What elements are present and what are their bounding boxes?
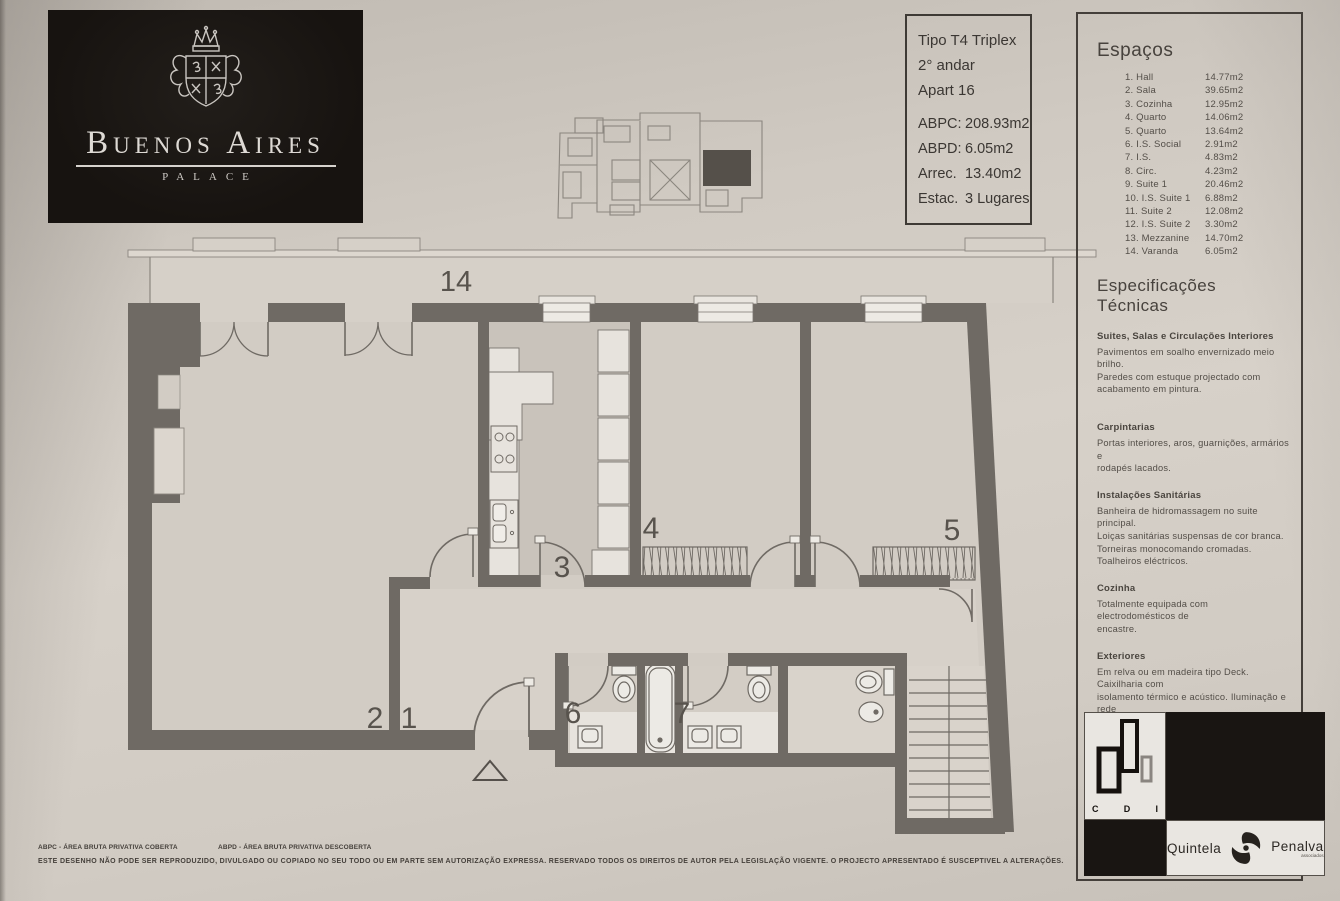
unit-metric-row: ABPD: 6.05m2 — [918, 137, 1030, 162]
unit-apartment: Apart 16 — [918, 78, 1030, 103]
sink-icon — [578, 726, 602, 748]
space-name: 3. Cozinha — [1125, 98, 1205, 111]
metric-value: 6.05m2 — [965, 137, 1013, 162]
space-row: 4. Quarto 14.06m2 — [1125, 111, 1289, 124]
key-plan — [558, 113, 762, 218]
room-label-cozinha: 3 — [554, 551, 571, 584]
spaces-title: Espaços — [1097, 40, 1289, 62]
spec-heading: Carpintarias — [1097, 422, 1289, 433]
associados-text: associados — [1301, 853, 1324, 858]
space-area: 12.95m2 — [1205, 98, 1243, 111]
space-row: 13. Mezzanine 14.70m2 — [1125, 232, 1289, 245]
quintela-penalva-logo: Quintela Penalva associados — [1166, 820, 1325, 876]
sink-icon — [688, 726, 712, 748]
space-area: 13.64m2 — [1205, 125, 1243, 138]
unit-type: Tipo T4 Triplex — [918, 28, 1030, 53]
unit-metric-row: Arrec. 13.40m2 — [918, 162, 1030, 187]
space-area: 14.77m2 — [1205, 71, 1243, 84]
space-name: 13. Mezzanine — [1125, 232, 1205, 245]
cdi-logo: C D I — [1084, 712, 1166, 820]
specifications-panel: Espaços 1. Hall 14.77m2 2. Sala 39.65m2 … — [1076, 12, 1303, 881]
space-name: 14. Varanda — [1125, 245, 1205, 258]
space-area: 14.70m2 — [1205, 232, 1243, 245]
cdi-logo-icon — [1085, 713, 1165, 797]
spec-heading: Suites, Salas e Circulações Interiores — [1097, 331, 1289, 342]
metric-label: ABPC: — [918, 112, 965, 137]
balcony-varanda — [128, 238, 1096, 303]
space-name: 6. I.S. Social — [1125, 138, 1205, 151]
space-name: 9. Suite 1 — [1125, 178, 1205, 191]
black-cell — [1166, 712, 1325, 820]
sink-icon — [717, 726, 741, 748]
brand-rule — [76, 165, 336, 167]
spec-heading: Cozinha — [1097, 583, 1289, 594]
legend-abpd: ABPD - ÁREA BRUTA PRIVATIVA DESCOBERTA — [218, 844, 372, 851]
space-name: 10. I.S. Suite 1 — [1125, 192, 1205, 205]
brand-logo-box: Buenos Aires PALACE — [48, 10, 363, 223]
spec-section: Cozinha Totalmente equipada com electrod… — [1097, 583, 1289, 636]
spec-heading: Instalações Sanitárias — [1097, 490, 1289, 501]
cdi-letters: C D I — [1092, 804, 1158, 814]
space-area: 20.46m2 — [1205, 178, 1243, 191]
plan-sheet: 14 2 1 3 4 5 6 7 — [0, 0, 1340, 901]
room-label-is: 7 — [674, 697, 691, 730]
metric-label: ABPD: — [918, 137, 965, 162]
toilet-icon — [747, 666, 771, 702]
spec-section: Suites, Salas e Circulações Interiores P… — [1097, 331, 1289, 396]
room-label-hall: 1 — [401, 702, 418, 735]
spec-section: Carpintarias Portas interiores, aros, gu… — [1097, 422, 1289, 475]
room-label-quarto5: 5 — [944, 514, 961, 547]
brand-name: Buenos Aires — [48, 125, 363, 162]
space-area: 6.88m2 — [1205, 192, 1238, 205]
room-label-is-social: 6 — [565, 697, 582, 730]
unit-metric-row: Estac. 3 Lugares — [918, 187, 1030, 212]
cooktop-icon — [491, 426, 517, 472]
spec-section: Instalações Sanitárias Banheira de hidro… — [1097, 490, 1289, 568]
space-row: 3. Cozinha 12.95m2 — [1125, 98, 1289, 111]
specs-title: Especificações Técnicas — [1097, 276, 1289, 316]
toilet-icon — [856, 669, 894, 695]
window — [861, 296, 926, 322]
space-name: 1. Hall — [1125, 71, 1205, 84]
black-cell — [1084, 820, 1166, 876]
metric-value: 3 Lugares — [965, 187, 1030, 212]
space-name: 5. Quarto — [1125, 125, 1205, 138]
room-label-quarto4: 4 — [643, 512, 660, 545]
space-area: 3.30m2 — [1205, 218, 1238, 231]
unit-floor: 2° andar — [918, 53, 1030, 78]
cdi-letter-c: C — [1092, 804, 1099, 814]
penalva-text: Penalva — [1271, 839, 1323, 854]
space-name: 7. I.S. — [1125, 151, 1205, 164]
key-plan-highlighted-unit — [703, 150, 751, 186]
metric-label: Arrec. — [918, 162, 965, 187]
space-row: 1. Hall 14.77m2 — [1125, 71, 1289, 84]
spaces-list: 1. Hall 14.77m2 2. Sala 39.65m2 3. Cozin… — [1125, 71, 1289, 259]
space-row: 2. Sala 39.65m2 — [1125, 84, 1289, 97]
spec-body: Banheira de hidromassagem no suite princ… — [1097, 505, 1289, 568]
cdi-letter-d: D — [1124, 804, 1131, 814]
bathtub-icon — [646, 664, 675, 752]
quintela-text: Quintela — [1167, 841, 1221, 856]
space-row: 12. I.S. Suite 2 3.30m2 — [1125, 218, 1289, 231]
copyright-disclaimer: ESTE DESENHO NÃO PODE SER REPRODUZIDO, D… — [38, 858, 938, 865]
space-row: 5. Quarto 13.64m2 — [1125, 125, 1289, 138]
space-area: 12.08m2 — [1205, 205, 1243, 218]
partner-logo-grid: C D I Quintela Penalva associados — [1084, 712, 1298, 876]
brand-subtitle: PALACE — [48, 171, 363, 183]
space-row: 8. Circ. 4.23m2 — [1125, 165, 1289, 178]
window — [539, 296, 595, 322]
space-name: 12. I.S. Suite 2 — [1125, 218, 1205, 231]
room-label-varanda: 14 — [440, 266, 472, 298]
space-area: 4.23m2 — [1205, 165, 1238, 178]
metric-value: 13.40m2 — [965, 162, 1021, 187]
hall-floor — [400, 589, 555, 730]
room-label-sala: 2 — [367, 702, 384, 735]
unit-info-box: Tipo T4 Triplex 2° andar Apart 16 ABPC: … — [905, 14, 1032, 225]
space-name: 2. Sala — [1125, 84, 1205, 97]
space-area: 4.83m2 — [1205, 151, 1238, 164]
space-row: 11. Suite 2 12.08m2 — [1125, 205, 1289, 218]
window — [694, 296, 757, 322]
unit-metrics: ABPC: 208.93m2 ABPD: 6.05m2 Arrec. 13.40… — [918, 112, 1030, 212]
metric-value: 208.93m2 — [965, 112, 1030, 137]
heraldic-crest-icon — [131, 20, 281, 118]
balcony-planter — [338, 238, 420, 251]
space-area: 2.91m2 — [1205, 138, 1238, 151]
space-area: 6.05m2 — [1205, 245, 1238, 258]
cdi-letter-i: I — [1155, 804, 1158, 814]
metric-label: Estac. — [918, 187, 965, 212]
wall-pillar — [154, 428, 184, 494]
kitchen-sink-icon — [490, 500, 518, 548]
wall-niche — [158, 375, 180, 409]
balcony-planter — [193, 238, 275, 251]
unit-metric-row: ABPC: 208.93m2 — [918, 112, 1030, 137]
space-name: 8. Circ. — [1125, 165, 1205, 178]
bidet-icon — [859, 702, 883, 722]
spec-body: Totalmente equipada com electrodoméstico… — [1097, 598, 1289, 636]
spec-body: Pavimentos em soalho envernizado meio br… — [1097, 346, 1289, 396]
quintela-penalva-swirl-icon — [1228, 830, 1264, 866]
space-row: 9. Suite 1 20.46m2 — [1125, 178, 1289, 191]
toilet-icon — [612, 666, 636, 702]
balcony-planter — [965, 238, 1045, 251]
entry-triangle-marker — [474, 761, 506, 780]
space-area: 39.65m2 — [1205, 84, 1243, 97]
space-row: 10. I.S. Suite 1 6.88m2 — [1125, 192, 1289, 205]
spec-body: Portas interiores, aros, guarnições, arm… — [1097, 437, 1289, 475]
space-row: 6. I.S. Social 2.91m2 — [1125, 138, 1289, 151]
space-name: 4. Quarto — [1125, 111, 1205, 124]
space-row: 14. Varanda 6.05m2 — [1125, 245, 1289, 258]
legend-abpc: ABPC - ÁREA BRUTA PRIVATIVA COBERTA — [38, 844, 178, 851]
space-name: 11. Suite 2 — [1125, 205, 1205, 218]
space-row: 7. I.S. 4.83m2 — [1125, 151, 1289, 164]
spec-heading: Exteriores — [1097, 651, 1289, 662]
space-area: 14.06m2 — [1205, 111, 1243, 124]
